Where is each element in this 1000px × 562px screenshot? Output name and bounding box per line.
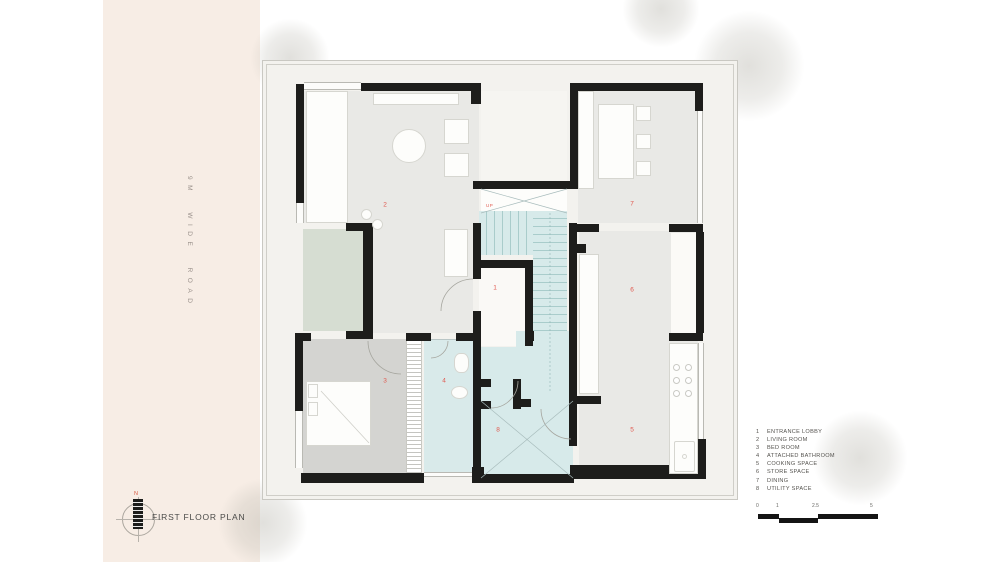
room-legend: 1ENTRANCE LOBBY 2LIVING ROOM 3BED ROOM 4… [756, 429, 886, 494]
scale-label: 2.5 [812, 503, 819, 509]
north-letter: N [134, 491, 138, 497]
scale-label: 5 [870, 503, 873, 509]
room-label-utility-space: 8 [496, 427, 500, 434]
stair-up-label: UP [486, 203, 493, 208]
legend-item: 7DINING [756, 478, 886, 486]
scale-bar-segment [779, 518, 818, 523]
legend-item: 4ATTACHED BATHROOM [756, 453, 886, 461]
north-arrow-icon [133, 499, 143, 529]
legend-item: 5COOKING SPACE [756, 461, 886, 469]
room-label-entrance-lobby: 1 [493, 285, 497, 292]
room-label-store-space: 6 [630, 287, 634, 294]
room-label-dining: 7 [630, 201, 634, 208]
drawing-title: FIRST FLOOR PLAN [152, 512, 245, 522]
floor-plan: 1 2 3 4 5 6 7 8 UP [262, 60, 738, 500]
scale-bar-segment [758, 514, 779, 519]
drawing-sheet: 9M WIDE ROAD [0, 0, 1000, 562]
room-label-living-room: 2 [383, 202, 387, 209]
room-label-cooking-space: 5 [630, 427, 634, 434]
legend-item: 2LIVING ROOM [756, 437, 886, 445]
legend-item: 3BED ROOM [756, 445, 886, 453]
scale-bar-segment [818, 514, 878, 519]
scale-label: 0 [756, 503, 759, 509]
scale-label: 1 [776, 503, 779, 509]
room-label-bathroom: 4 [442, 378, 446, 385]
legend-item: 6STORE SPACE [756, 469, 886, 477]
road-label: 9M WIDE ROAD [186, 176, 193, 308]
room-label-bed-room: 3 [383, 378, 387, 385]
tree-icon [622, 0, 700, 48]
legend-item: 8UTILITY SPACE [756, 486, 886, 494]
legend-item: 1ENTRANCE LOBBY [756, 429, 886, 437]
plan-linework [263, 61, 739, 501]
road-strip [103, 0, 260, 562]
